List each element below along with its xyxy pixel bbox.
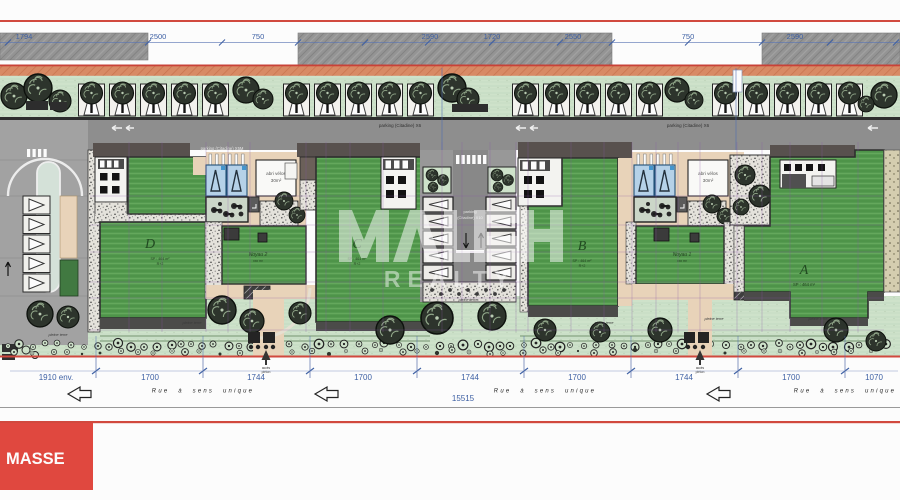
svg-text:A: A xyxy=(799,263,809,278)
svg-text:MASSE: MASSE xyxy=(6,450,65,468)
svg-text:1700: 1700 xyxy=(782,373,800,382)
svg-text:piéton: piéton xyxy=(696,370,705,374)
svg-text:1700: 1700 xyxy=(568,373,586,382)
svg-text:R+2: R+2 xyxy=(579,264,586,268)
svg-text:xxx m²: xxx m² xyxy=(253,259,264,263)
svg-text:15515: 15515 xyxy=(452,394,475,403)
svg-text:1794: 1794 xyxy=(16,32,33,41)
svg-text:abri vélos: abri vélos xyxy=(266,171,286,176)
svg-text:2590: 2590 xyxy=(422,32,439,41)
svg-text:2550: 2550 xyxy=(565,32,582,41)
svg-text:30m²: 30m² xyxy=(271,178,282,183)
svg-text:Noyau 2: Noyau 2 xyxy=(249,252,268,258)
svg-text:30m²: 30m² xyxy=(703,178,714,183)
svg-text:SP : 464 m²: SP : 464 m² xyxy=(573,259,593,263)
svg-text:abri vélos: abri vélos xyxy=(698,171,718,176)
svg-text:D: D xyxy=(144,237,155,252)
svg-text:SP : 464 m²: SP : 464 m² xyxy=(151,257,171,261)
svg-text:Noyau 1: Noyau 1 xyxy=(673,252,692,258)
svg-text:pleine terre: pleine terre xyxy=(458,298,478,302)
svg-text:pleine terre: pleine terre xyxy=(48,333,68,337)
svg-text:1910 env.: 1910 env. xyxy=(39,373,74,382)
svg-text:parking (Citadine) X6: parking (Citadine) X6 xyxy=(379,123,422,128)
svg-text:1070: 1070 xyxy=(865,373,883,382)
svg-text:REALTY: REALTY xyxy=(384,266,516,292)
svg-text:Rue à sens unique: Rue à sens unique xyxy=(152,389,254,395)
svg-text:1744: 1744 xyxy=(461,373,479,382)
svg-text:750: 750 xyxy=(682,32,695,41)
svg-text:2590: 2590 xyxy=(787,32,804,41)
svg-text:2500: 2500 xyxy=(150,32,167,41)
svg-text:pleine terre: pleine terre xyxy=(182,321,202,325)
svg-text:750: 750 xyxy=(252,32,265,41)
svg-text:SP : 464 m²: SP : 464 m² xyxy=(793,282,816,287)
svg-text:pleine terre: pleine terre xyxy=(594,321,614,325)
svg-text:1720: 1720 xyxy=(484,32,501,41)
svg-text:Rue à sens unique: Rue à sens unique xyxy=(494,389,596,395)
svg-text:1700: 1700 xyxy=(141,373,159,382)
svg-text:1744: 1744 xyxy=(675,373,693,382)
svg-text:R+2: R+2 xyxy=(354,262,361,266)
svg-text:pleine terre: pleine terre xyxy=(808,317,828,321)
svg-text:parking (Citadine) X6: parking (Citadine) X6 xyxy=(667,123,710,128)
svg-text:parking (Citadine) X5M: parking (Citadine) X5M xyxy=(201,146,244,151)
svg-text:pleine terre: pleine terre xyxy=(704,317,724,321)
svg-text:xxx m²: xxx m² xyxy=(677,259,688,263)
svg-text:1744: 1744 xyxy=(247,373,265,382)
svg-text:1700: 1700 xyxy=(354,373,372,382)
svg-text:Rue à sens unique: Rue à sens unique xyxy=(794,389,896,395)
